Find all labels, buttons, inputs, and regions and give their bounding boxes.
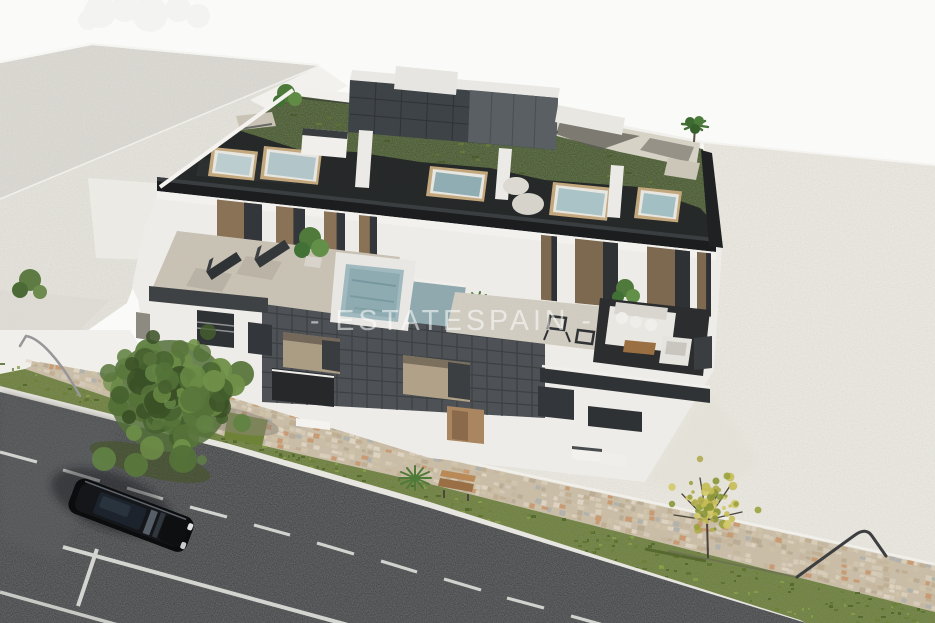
svg-text:- ESTATESPAIN -: - ESTATESPAIN -: [310, 305, 595, 337]
